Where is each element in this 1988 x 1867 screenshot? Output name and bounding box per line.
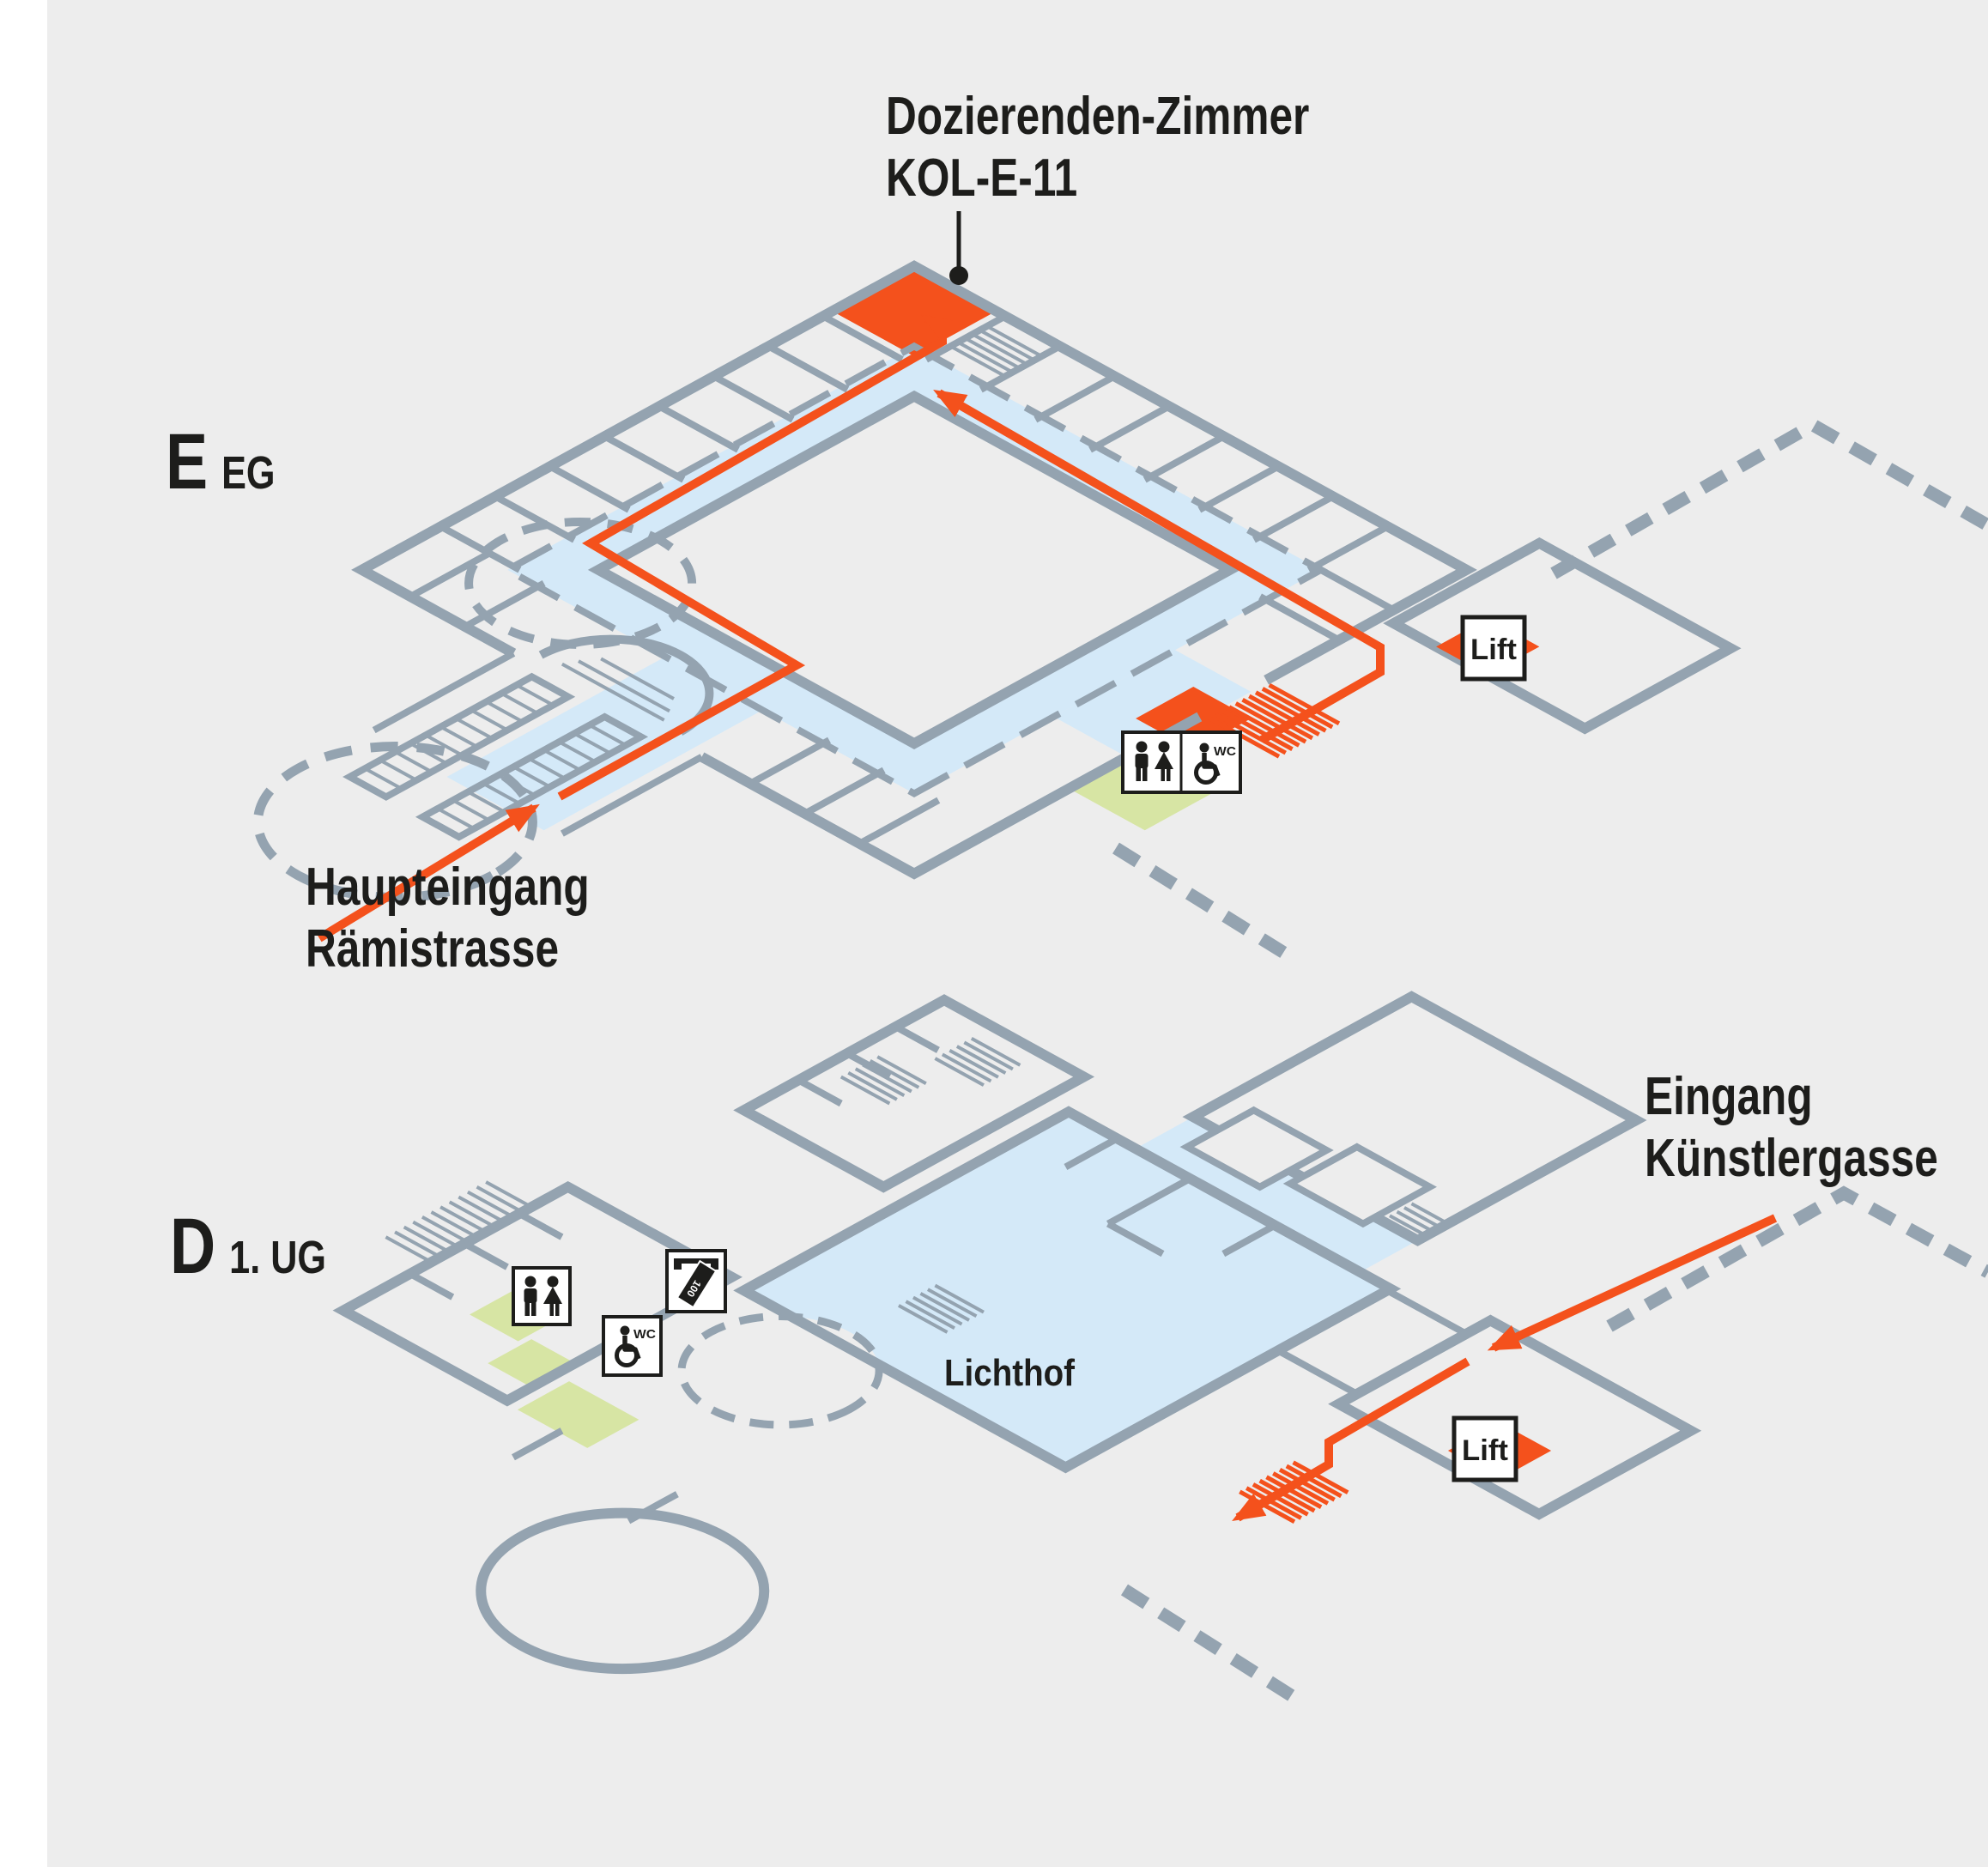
- haupteingang-line1: Haupteingang: [306, 857, 590, 918]
- lift-label-e: Lift: [1470, 633, 1517, 666]
- floor-label-d: D 1. UG: [170, 1207, 326, 1286]
- floor-label-e: E EG: [166, 422, 276, 501]
- route-d-inner: [1238, 1361, 1468, 1518]
- stairs-nw2-d: [841, 1057, 926, 1103]
- callout-dot: [949, 266, 968, 285]
- continuation-dashed-se-e: [1116, 848, 1298, 961]
- lift-badge-e: Lift: [1463, 617, 1524, 679]
- kuenstlergasse-line1: Eingang: [1645, 1066, 1938, 1128]
- room-callout-line1: Dozierenden-Zimmer: [886, 86, 1309, 148]
- room-callout-label: Dozierenden-Zimmer KOL-E-11: [886, 86, 1309, 209]
- stairs-orange-d: [1239, 1463, 1348, 1522]
- haupteingang-line2: Rämistrasse: [306, 918, 590, 980]
- continuation-dashed-ne-e: [1554, 425, 1988, 573]
- wc-sign-d: [513, 1268, 570, 1324]
- wc-text-d: WC: [633, 1327, 656, 1342]
- green-patch-d3: [518, 1381, 639, 1448]
- floor-level-e: EG: [221, 446, 275, 500]
- entrance-label-kuenstlergasse: Eingang Künstlergasse: [1645, 1066, 1938, 1190]
- rotunda-d: [422, 1481, 823, 1701]
- route-kuenstlergasse-arrow: [1494, 1218, 1775, 1348]
- floor-letter-e: E: [166, 422, 208, 501]
- floorplan-canvas: WC Lift: [0, 0, 1988, 1867]
- floorplan-svg: WC Lift: [0, 0, 1988, 1867]
- lift-badge-d: Lift: [1454, 1418, 1516, 1480]
- continuation-dashed-se-d: [1124, 1590, 1300, 1701]
- floor-level-d: 1. UG: [229, 1231, 326, 1284]
- room-callout-line2: KOL-E-11: [886, 148, 1309, 209]
- entrance-label-haupteingang: Haupteingang Rämistrasse: [306, 857, 590, 980]
- continuation-dashed-ne-d: [1609, 1193, 1988, 1326]
- kuenstlergasse-line2: Künstlergasse: [1645, 1128, 1938, 1190]
- floor-letter-d: D: [170, 1207, 215, 1286]
- lichthof-label: Lichthof: [944, 1352, 1075, 1394]
- lift-label-d: Lift: [1462, 1434, 1508, 1467]
- floor-plan-d: [82, 834, 1946, 1859]
- wc-text-e: WC: [1214, 744, 1236, 759]
- wc-sign-e: WC: [1123, 732, 1240, 792]
- rotunda-neck-walls-d: [513, 1431, 677, 1521]
- ticket-machine-sign-d: 100: [667, 1251, 725, 1312]
- stairs-nw1-d: [935, 1039, 1020, 1085]
- wc-accessible-sign-d: WC: [603, 1317, 661, 1375]
